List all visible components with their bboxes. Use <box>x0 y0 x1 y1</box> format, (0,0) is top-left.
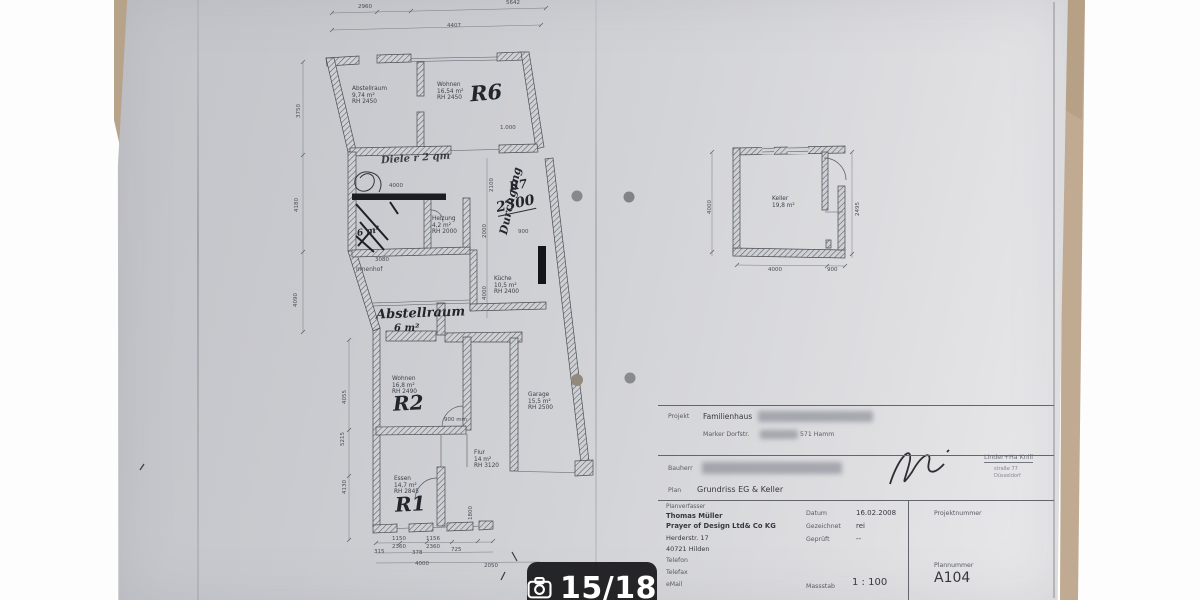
massstab-label: Massstab <box>806 583 835 590</box>
dimension-label: 4090 <box>293 293 299 307</box>
dimension-label: 4180 <box>294 198 300 212</box>
dimension-label: 900 <box>518 229 529 235</box>
photo-viewer[interactable]: Abstellraum 9,74 m² RH 2450 Wohnen 16,54… <box>0 0 1200 600</box>
plan-title: Grundriss EG & Keller <box>697 485 783 494</box>
projekt-value: Familienhaus <box>703 412 752 421</box>
dimension-label: 2100 <box>489 178 495 192</box>
camera-icon <box>527 576 552 600</box>
room-label-abstellraum: Abstellraum 9,74 m² RH 2450 <box>352 86 387 106</box>
author-city: 40721 Hilden <box>666 545 710 553</box>
dimension-label: 5215 <box>340 432 346 446</box>
handwritten-r2: R2 <box>392 390 424 416</box>
dimension-label: 900 mm <box>444 417 467 423</box>
dimension-label: 2050 <box>484 563 498 569</box>
dimension-label: 3080 <box>375 257 389 263</box>
dimension-label: 4000 <box>768 267 782 273</box>
telefon-label: Telefon <box>666 557 688 564</box>
handwritten-r1: R1 <box>394 491 426 517</box>
titleblock-rule <box>658 500 1054 501</box>
plannummer-value: A104 <box>934 570 970 586</box>
handwritten-r6: R6 <box>469 79 503 107</box>
dimension-label: 2360 <box>426 544 440 550</box>
address-city: 571 Hamm <box>800 431 834 438</box>
geprueft-label: Geprüft <box>806 536 830 543</box>
dimension-label: 2960 <box>358 4 372 10</box>
author-street: Herderstr. 17 <box>666 534 709 542</box>
author-name: Thomas Müller <box>666 512 722 520</box>
datum-value: 16.02.2008 <box>856 509 896 517</box>
dimension-label: 5642 <box>506 0 520 6</box>
photo-counter-badge: 15/18 <box>527 562 657 600</box>
telefax-label: Telefax <box>666 569 688 576</box>
room-label-garage: Garage 15,5 m² RH 2500 <box>528 392 553 412</box>
plan-label: Plan <box>668 487 681 494</box>
gezeichnet-label: Gezeichnet <box>806 523 841 530</box>
dimension-label: 315 <box>374 549 385 555</box>
bauherr-label: Bauherr <box>668 465 693 472</box>
author-company: Prayer of Design Ltd& Co KG <box>666 522 776 530</box>
dimension-label: 2360 <box>392 544 406 550</box>
room-label-kueche: Küche 10,5 m² RH 2400 <box>494 276 519 296</box>
dimension-label: 2495 <box>855 202 861 216</box>
projektnummer-label: Projektnummer <box>934 510 982 517</box>
handwritten-r7: R7 <box>508 177 528 194</box>
email-label: eMail <box>666 581 682 588</box>
redacted-text <box>760 430 798 439</box>
room-label-flur: Flur 14 m² RH 3120 <box>474 450 499 470</box>
room-label-heizung: Heizung 4,2 m² RH 2000 <box>432 216 457 236</box>
dimension-label: 725 <box>451 547 462 553</box>
massstab-value: 1 : 100 <box>852 577 887 588</box>
handwritten-6qm: 6 m² <box>394 323 419 334</box>
dimension-label: 1.000 <box>500 125 516 131</box>
handwritten-wc-6qm: 6 m² <box>356 225 380 239</box>
dimension-label: 4000 <box>707 200 713 214</box>
handwritten-abstellraum: Abstellraum <box>376 304 466 322</box>
dimension-label: 4000 <box>482 286 488 300</box>
dimension-label: 1800 <box>468 506 474 520</box>
dimension-label: 378 <box>412 550 423 556</box>
planverfasser-label: Planverfasser <box>666 504 705 510</box>
dimension-label: 4130 <box>342 480 348 494</box>
innenhof-label: Innenhof <box>356 266 382 273</box>
dimension-label: 4407 <box>447 23 461 29</box>
room-label-keller: Keller 19,8 m² <box>772 196 795 209</box>
datum-label: Datum <box>806 510 827 517</box>
stamp-city: Düsseldorf <box>994 473 1021 479</box>
redacted-text <box>702 462 842 474</box>
gezeichnet-value: rei <box>856 522 865 530</box>
stamp-name: Linder+Ha Knill <box>984 454 1033 463</box>
geprueft-value: -- <box>856 535 861 543</box>
dimension-label: 4000 <box>415 561 429 567</box>
titleblock-rule <box>658 405 1054 406</box>
label-layer: Abstellraum 9,74 m² RH 2450 Wohnen 16,54… <box>0 0 1200 600</box>
room-label-wohnen-r6: Wohnen 16,54 m² RH 2450 <box>437 82 463 102</box>
dimension-label: 900 <box>827 267 838 273</box>
dimension-label: 1150 <box>392 536 406 542</box>
address-street: Marker Dorfstr. <box>703 431 749 438</box>
handwritten-hall-note: Diele r 2 qm <box>381 151 451 167</box>
dimension-label: 3750 <box>296 104 302 118</box>
dimension-label: 4055 <box>342 390 348 404</box>
dimension-label: 1156 <box>426 536 440 542</box>
redacted-text <box>758 411 873 422</box>
photo-counter-text: 15/18 <box>560 571 657 600</box>
stamp-street: straße 77 <box>994 466 1018 472</box>
dimension-label: 2000 <box>482 224 488 238</box>
dimension-label: 4000 <box>389 183 403 189</box>
plannummer-label: Plannummer <box>934 562 973 569</box>
handwritten-2300: 2300 <box>495 192 537 217</box>
projekt-label: Projekt <box>668 413 689 420</box>
titleblock-rule <box>908 500 909 600</box>
